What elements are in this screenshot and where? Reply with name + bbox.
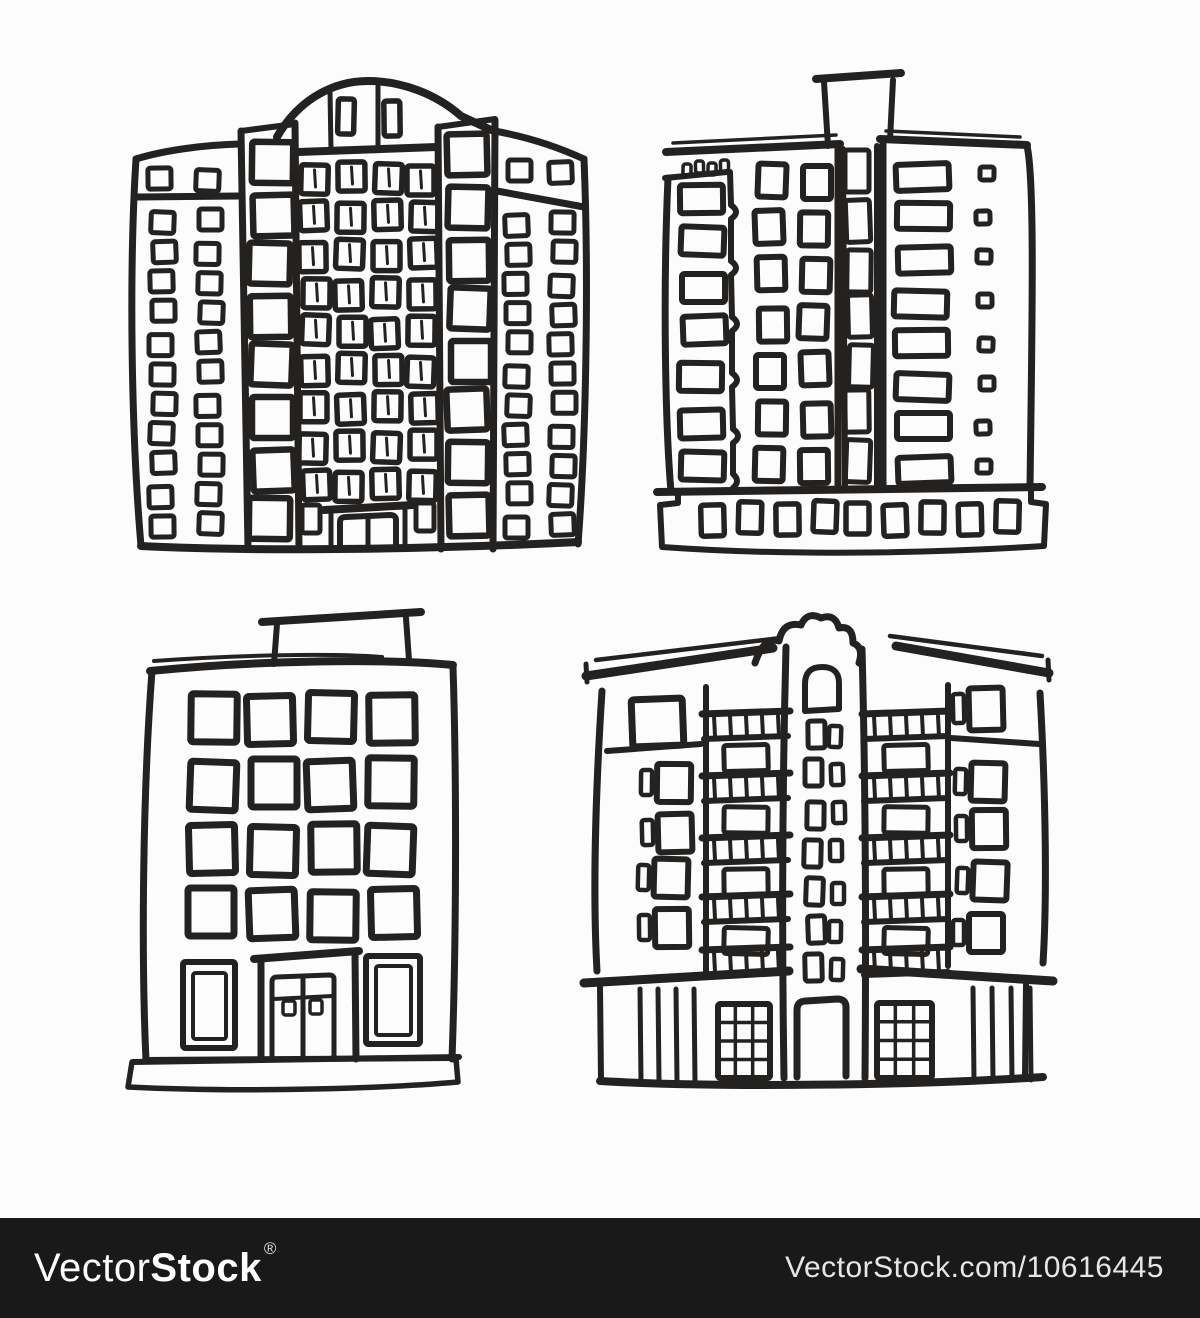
- apartment-block-roof-shaft-sketch: [657, 73, 1046, 553]
- stock-illustration-page: VectorStock® VectorStock.com/10616445: [0, 0, 1200, 1318]
- registered-trademark-icon: ®: [264, 1239, 277, 1258]
- apartment-house-central-tower-sketch: [584, 616, 1053, 1085]
- vectorstock-logo: VectorStock®: [34, 1246, 277, 1291]
- watermark-bar: VectorStock® VectorStock.com/10616445: [0, 1218, 1200, 1318]
- logo-text-bold: Stock: [150, 1246, 261, 1290]
- five-story-office-block-sketch: [128, 612, 459, 1090]
- buildings-sketch-illustration: [0, 0, 1200, 1318]
- highrise-arched-crown-sketch: [132, 81, 587, 549]
- watermark-url: VectorStock.com/10616445: [785, 1251, 1164, 1285]
- logo-text-light: Vector: [34, 1246, 150, 1290]
